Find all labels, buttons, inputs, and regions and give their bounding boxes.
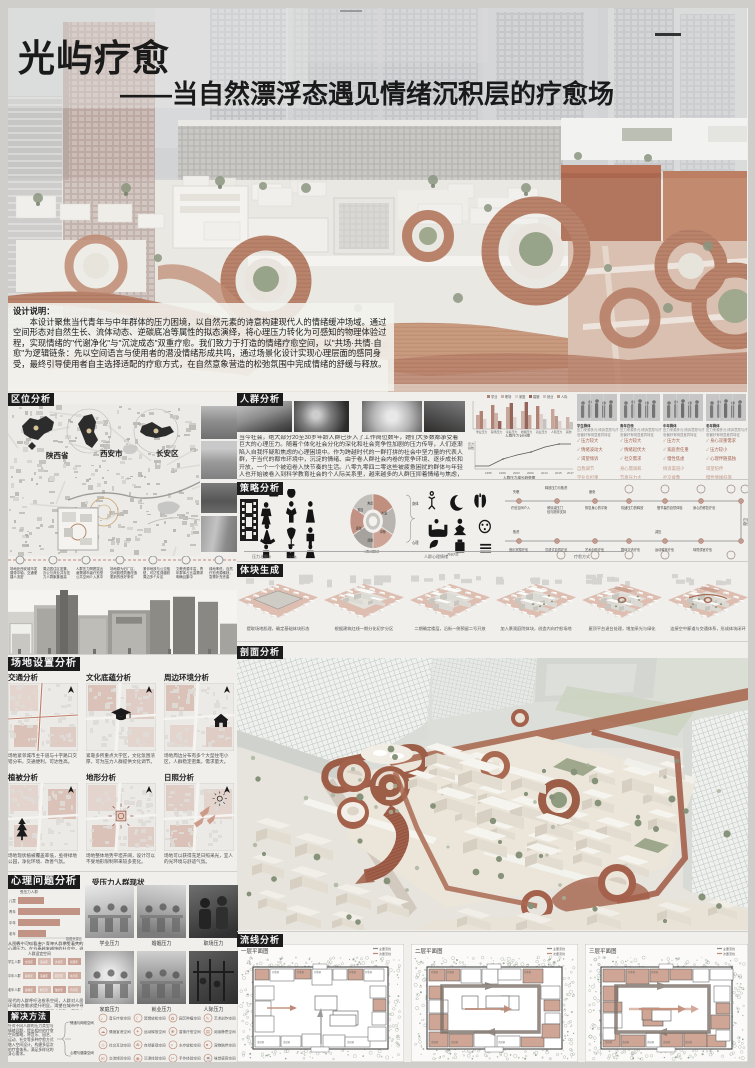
- svg-text:疗愈室: 疗愈室: [431, 970, 439, 974]
- svg-text:声疗区: 声疗区: [70, 988, 78, 992]
- svg-text:疗愈室: 疗愈室: [349, 970, 357, 974]
- svg-text:疗愈室: 疗愈室: [272, 970, 280, 974]
- svg-text:水疗区: 水疗区: [70, 974, 78, 978]
- svg-text:心理: 心理: [412, 540, 419, 545]
- svg-text:就业: 就业: [547, 394, 553, 399]
- svg-text:☾: ☾: [136, 1016, 140, 1021]
- svg-text:失眠: 失眠: [513, 489, 520, 494]
- svg-text:1995: 1995: [485, 471, 492, 475]
- svg-text:活动室: 活动室: [498, 1040, 506, 1044]
- svg-text:青年: 青年: [9, 909, 16, 914]
- svg-text:香薰疗愈空间: 香薰疗愈空间: [179, 1029, 201, 1034]
- svg-text:老年人群: 老年人群: [8, 987, 22, 992]
- svg-text:音乐冥想疗愈: 音乐冥想疗愈: [509, 547, 529, 552]
- svg-text:疗愈空间介入: 疗愈空间介入: [511, 505, 531, 510]
- svg-text:孤独: 孤独: [357, 507, 363, 512]
- svg-text:公共空间介入其中: 公共空间介入其中: [76, 574, 104, 579]
- svg-text:活动室: 活动室: [451, 1040, 459, 1044]
- svg-text:▤: ▤: [206, 1029, 211, 1034]
- svg-text:阅读静思空间: 阅读静思空间: [214, 1029, 236, 1034]
- svg-text:三层平面图: 三层平面图: [589, 947, 617, 955]
- svg-text:儿童: 儿童: [9, 898, 16, 903]
- svg-text:2009: 2009: [527, 471, 534, 475]
- svg-text:活动室: 活动室: [283, 1040, 291, 1044]
- svg-text:情绪压力的释放: 情绪压力的释放: [621, 505, 644, 510]
- svg-text:❀: ❀: [171, 1029, 175, 1034]
- svg-text:次要流线: 次要流线: [723, 951, 735, 956]
- svg-text:中年人群: 中年人群: [8, 973, 22, 978]
- svg-text:失眠: 失眠: [381, 510, 387, 515]
- svg-text:活动室: 活动室: [647, 1040, 655, 1044]
- svg-text:艺术创作空间: 艺术创作空间: [214, 1016, 236, 1021]
- svg-text:康体区: 康体区: [25, 988, 33, 992]
- svg-text:园艺种植空间: 园艺种植空间: [179, 1016, 201, 1021]
- svg-text:捷人流密: 捷人流密: [10, 574, 24, 579]
- svg-text:次要流线: 次要流线: [379, 951, 391, 956]
- svg-text:文创区: 文创区: [55, 960, 63, 964]
- svg-text:径与陪伴支持: 径与陪伴支持: [547, 509, 567, 514]
- svg-text:☁: ☁: [101, 1029, 106, 1034]
- svg-text:学生人群: 学生人群: [8, 959, 22, 964]
- svg-text:2015: 2015: [555, 471, 562, 475]
- svg-text:抑郁: 抑郁: [380, 529, 386, 534]
- svg-text:周边多个片区: 周边多个片区: [143, 574, 164, 579]
- svg-text:主要流线: 主要流线: [723, 946, 735, 951]
- svg-text:疲惫: 疲惫: [356, 525, 362, 530]
- svg-text:✿: ✿: [171, 1016, 175, 1021]
- svg-text:☺: ☺: [101, 1043, 106, 1048]
- svg-text:活动室: 活动室: [431, 1040, 439, 1044]
- svg-text:棋艺区: 棋艺区: [40, 988, 48, 992]
- svg-text:活动室: 活动室: [605, 1040, 613, 1044]
- svg-text:◉: ◉: [136, 1056, 141, 1061]
- svg-text:宠物陪伴空间: 宠物陪伴空间: [214, 1042, 236, 1047]
- svg-text:活动室: 活动室: [347, 1040, 355, 1044]
- svg-text:受压力人群: 受压力人群: [20, 889, 38, 894]
- svg-text:味觉感官疗愈: 味觉感官疗愈: [693, 547, 713, 552]
- svg-text:疗愈室: 疗愈室: [314, 970, 322, 974]
- svg-text:手作体验空间: 手作体验空间: [179, 1056, 201, 1061]
- svg-text:职场压力: 职场压力: [491, 430, 502, 434]
- svg-text:主要流线: 主要流线: [553, 946, 565, 951]
- svg-text:西安市: 西安市: [100, 448, 123, 458]
- svg-text:人际压力: 人际压力: [551, 430, 562, 434]
- svg-text:就业压力: 就业压力: [536, 430, 547, 434]
- svg-text:家庭: 家庭: [519, 394, 526, 399]
- svg-text:交流倾诉空间: 交流倾诉空间: [109, 1056, 131, 1061]
- svg-text:恢复身心的平衡: 恢复身心的平衡: [585, 505, 608, 510]
- svg-text:☕: ☕: [206, 1055, 212, 1061]
- svg-text:疗愈室: 疗愈室: [297, 970, 305, 974]
- svg-text:♥: ♥: [206, 1043, 209, 1048]
- svg-text:2017: 2017: [567, 471, 574, 475]
- svg-text:音乐疗愈空间: 音乐疗愈空间: [109, 1016, 131, 1021]
- svg-text:明确且集中: 明确且集中: [176, 574, 194, 579]
- svg-text:烦躁: 烦躁: [367, 537, 373, 542]
- svg-text:二层平面图: 二层平面图: [415, 947, 443, 955]
- svg-text:身心的修复疗愈: 身心的修复疗愈: [693, 505, 716, 510]
- svg-text:✎: ✎: [206, 1016, 210, 1021]
- svg-text:疗愈室: 疗愈室: [628, 970, 636, 974]
- svg-text:学业: 学业: [491, 394, 497, 399]
- svg-text:冥想放松空间: 冥想放松空间: [144, 1016, 166, 1021]
- svg-text:情绪宣泄空间: 情绪宣泄空间: [109, 1029, 131, 1034]
- svg-text:疗愈室: 疗愈室: [651, 970, 659, 974]
- svg-text:主要流线: 主要流线: [379, 946, 391, 951]
- svg-text:社交互动空间: 社交互动空间: [109, 1042, 131, 1047]
- svg-text:沉浸体验空间: 沉浸体验空间: [144, 1056, 166, 1061]
- svg-text:职场: 职场: [505, 394, 511, 399]
- svg-text:中年: 中年: [9, 920, 16, 925]
- svg-text:茶歇区: 茶歇区: [40, 974, 48, 978]
- svg-text:指数: 指数: [468, 445, 474, 450]
- svg-text:活动室: 活动室: [622, 1040, 630, 1044]
- svg-text:2003: 2003: [513, 471, 520, 475]
- svg-text:急需补充完善: 急需补充完善: [209, 574, 230, 579]
- svg-text:♪: ♪: [101, 1016, 103, 1021]
- svg-text:行为状态: 行为状态: [287, 555, 297, 559]
- svg-text:次要流线: 次要流线: [553, 951, 565, 956]
- svg-text:人际: 人际: [561, 394, 568, 399]
- svg-text:疗愈室: 疗愈室: [524, 970, 532, 974]
- svg-text:水疗放松空间: 水疗放松空间: [179, 1042, 201, 1047]
- svg-text:✦: ✦: [136, 1029, 140, 1034]
- svg-text:✂: ✂: [171, 1056, 175, 1061]
- svg-text:疗愈方式: 疗愈方式: [447, 552, 458, 556]
- svg-text:一层平面图: 一层平面图: [241, 947, 269, 955]
- svg-text:老年: 老年: [9, 931, 16, 936]
- svg-text:散步区: 散步区: [55, 988, 63, 992]
- svg-text:沉浸式自然疗愈: 沉浸式自然疗愈: [545, 547, 568, 552]
- svg-text:≈: ≈: [171, 1043, 174, 1048]
- svg-text:其他: 其他: [566, 430, 572, 434]
- svg-text:焦虑: 焦虑: [513, 529, 520, 534]
- svg-text:婚姻: 婚姻: [533, 394, 539, 399]
- svg-text:1999: 1999: [499, 471, 506, 475]
- svg-text:运动释放空间: 运动释放空间: [144, 1029, 166, 1034]
- svg-text:✉: ✉: [101, 1056, 105, 1061]
- svg-text:疗愈室: 疗愈室: [447, 970, 455, 974]
- svg-text:减压: 减压: [655, 529, 662, 534]
- svg-text:自然景观空间: 自然景观空间: [144, 1042, 166, 1047]
- svg-text:焦虑: 焦虑: [367, 500, 373, 505]
- svg-text:慢节奏的自然体验: 慢节奏的自然体验: [657, 505, 683, 510]
- svg-text:陕西省: 陕西省: [46, 450, 69, 460]
- svg-text:运动区: 运动区: [40, 960, 48, 964]
- svg-text:力人群聚集度高: 力人群聚集度高: [43, 574, 67, 579]
- svg-text:学业压力: 学业压力: [476, 430, 487, 434]
- svg-text:☘: ☘: [136, 1043, 141, 1048]
- svg-text:静思区: 静思区: [25, 974, 33, 978]
- svg-text:园艺区: 园艺区: [55, 974, 63, 978]
- svg-text:味觉感官空间: 味觉感官空间: [214, 1056, 236, 1061]
- svg-text:活动室: 活动室: [257, 1040, 265, 1044]
- svg-text:长安区: 长安区: [156, 448, 179, 458]
- svg-text:活动室: 活动室: [663, 1040, 671, 1044]
- svg-text:冥想区: 冥想区: [70, 960, 78, 964]
- svg-text:2013: 2013: [541, 471, 548, 475]
- svg-text:活动室: 活动室: [685, 1040, 693, 1044]
- svg-text:疗愈室: 疗愈室: [365, 970, 373, 974]
- svg-text:人群适宜空间: 人群适宜空间: [28, 951, 51, 956]
- svg-text:释放压力与焦虑: 释放压力与焦虑: [545, 485, 568, 490]
- svg-text:更新的良好条件: 更新的良好条件: [110, 574, 134, 579]
- svg-text:交流区: 交流区: [25, 960, 33, 964]
- svg-text:身体: 身体: [412, 501, 419, 506]
- svg-text:疲惫: 疲惫: [589, 489, 596, 494]
